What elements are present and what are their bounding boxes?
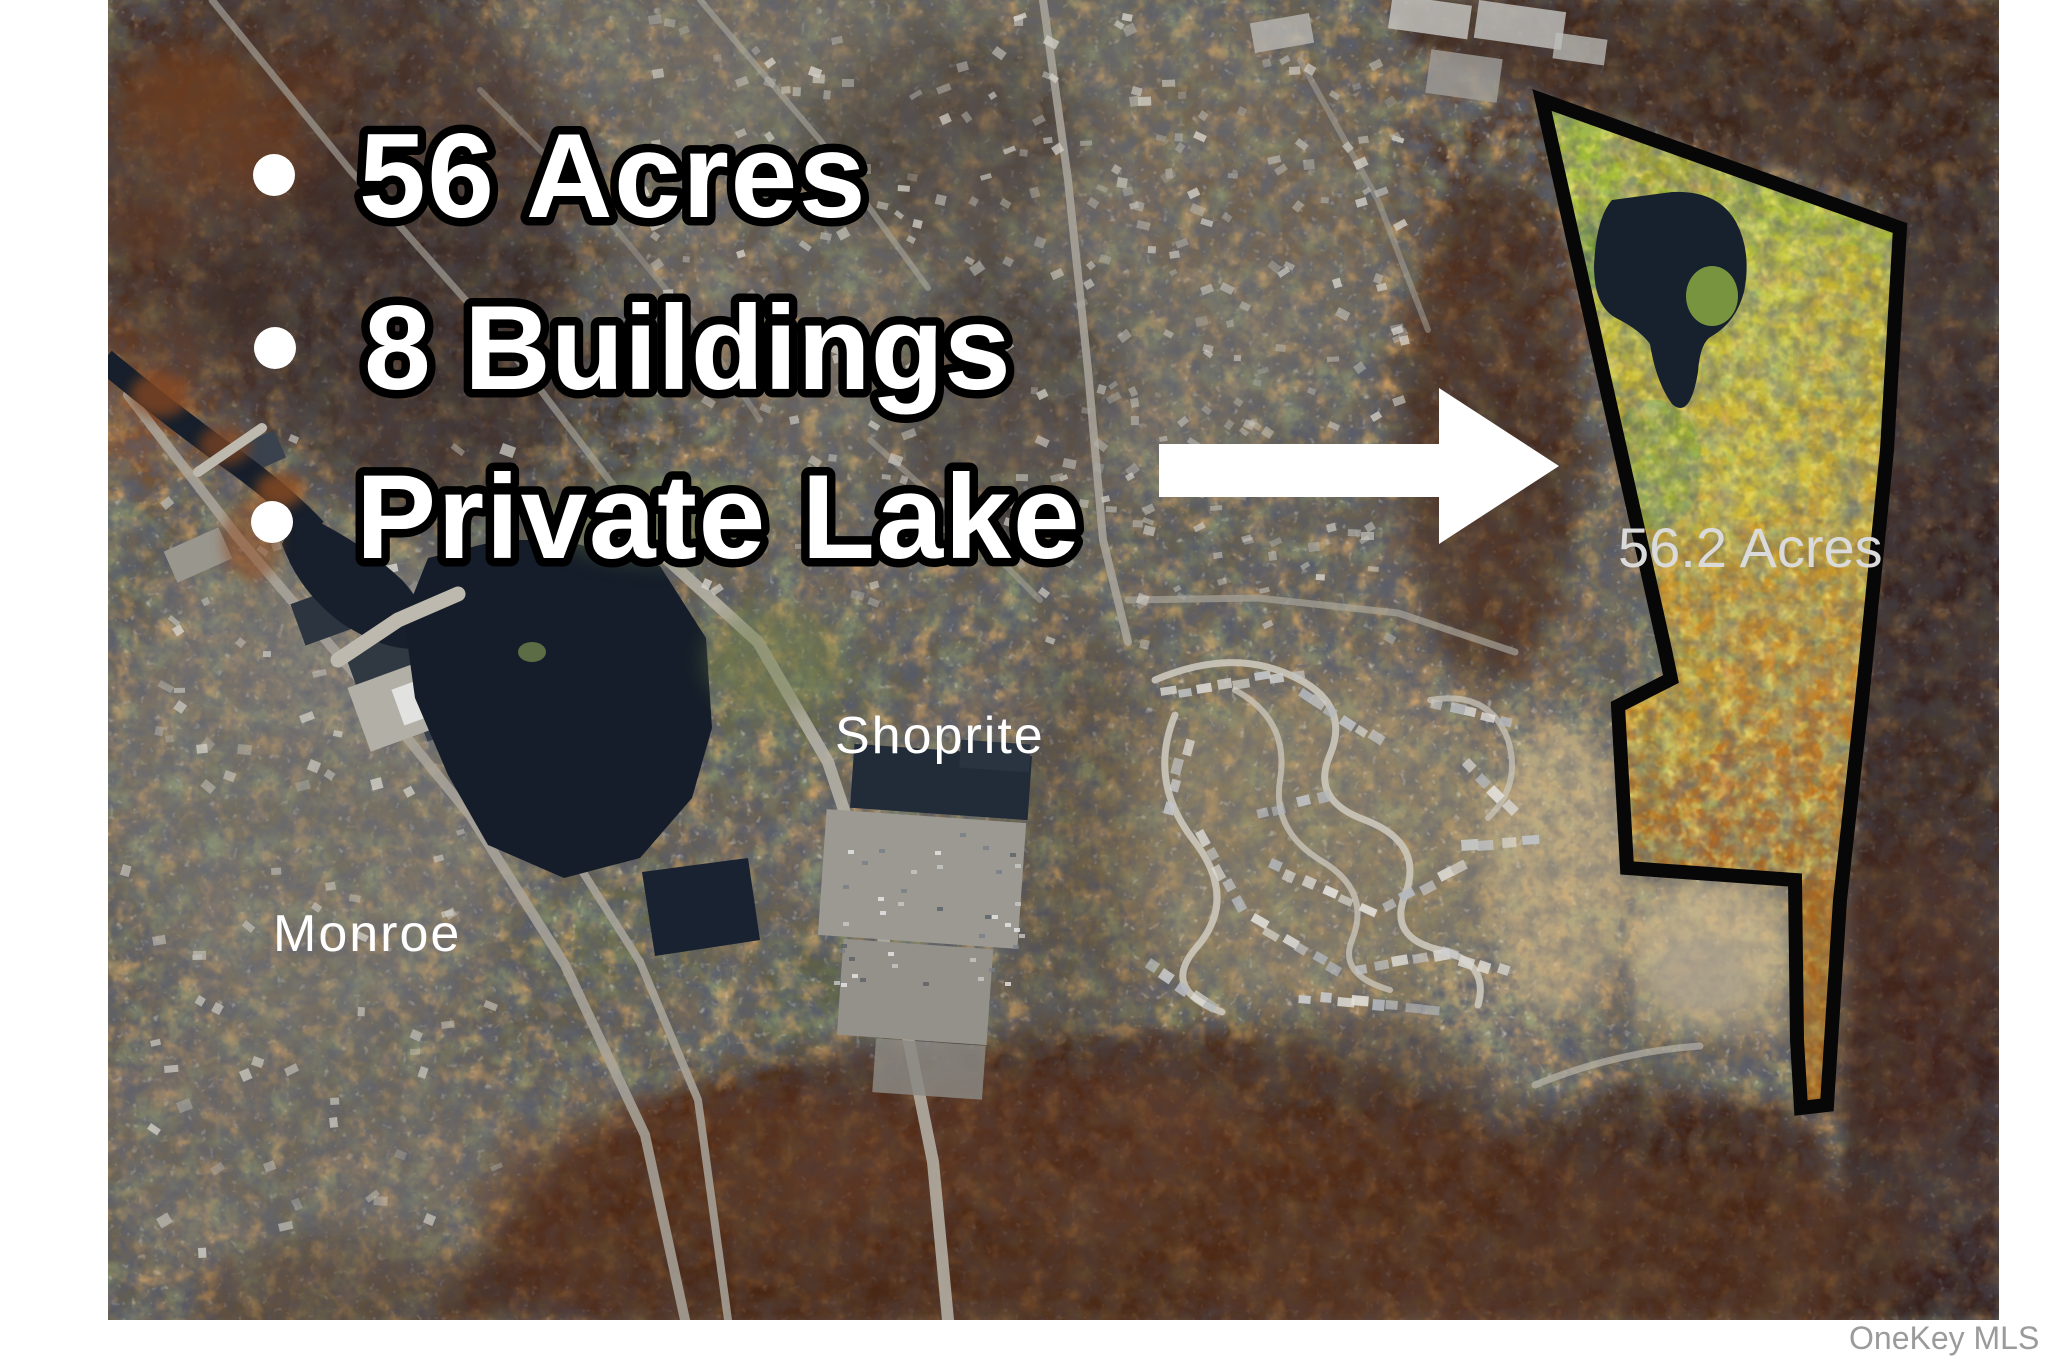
svg-text:8 Buildings: 8 Buildings (364, 281, 1011, 415)
svg-text:56.2 Acres: 56.2 Acres (1618, 516, 1883, 579)
svg-text:56 Acres: 56 Acres (359, 109, 867, 243)
svg-text:OneKey MLS: OneKey MLS (1849, 1320, 2039, 1356)
svg-text:Private Lake: Private Lake (356, 450, 1081, 584)
svg-text:Shoprite: Shoprite (835, 707, 1045, 765)
svg-text:Monroe: Monroe (273, 905, 461, 963)
